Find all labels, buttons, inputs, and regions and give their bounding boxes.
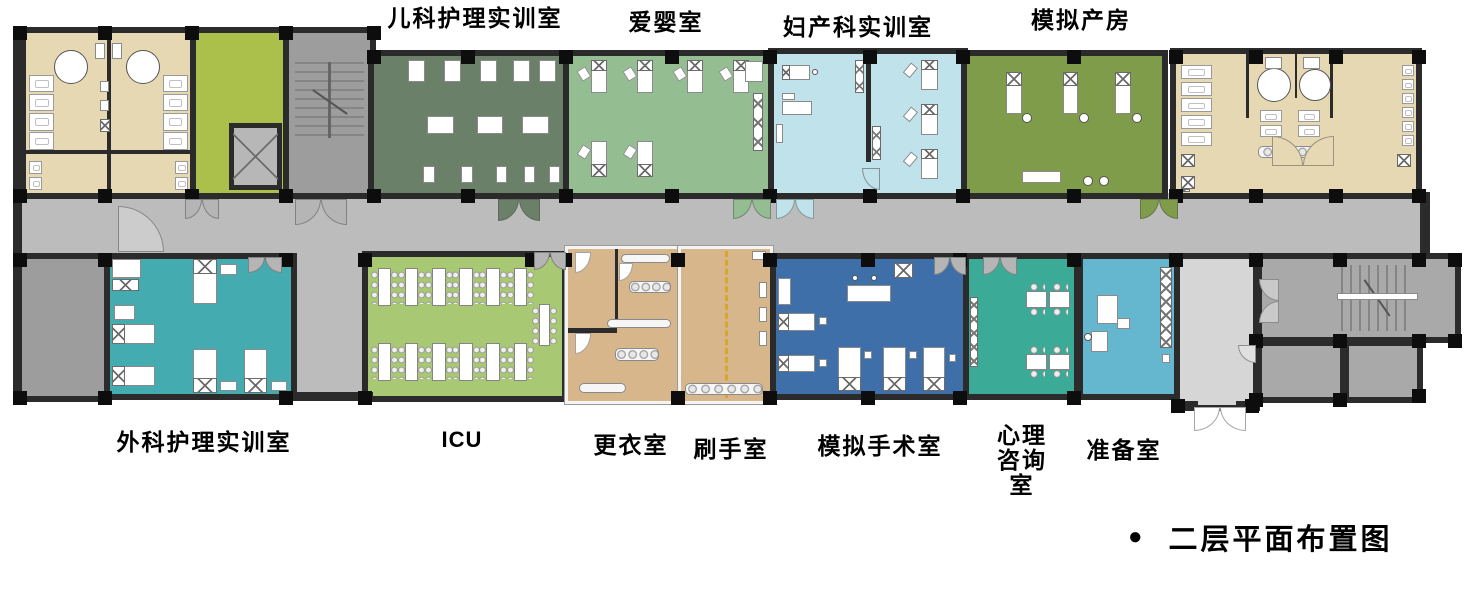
prep-room-furniture xyxy=(1097,295,1118,323)
restroom-left-toilet-stall xyxy=(29,132,54,150)
restroom-left-toilet-stall xyxy=(29,113,54,131)
elevator-x-icon xyxy=(233,127,278,186)
structural-column xyxy=(13,26,27,40)
structural-column xyxy=(1412,334,1426,348)
room-bottom-right-2-floor xyxy=(1343,340,1423,403)
structural-column xyxy=(1448,253,1462,267)
structural-column xyxy=(98,26,112,40)
operating-room-bed xyxy=(883,347,906,392)
counseling-room-cabinet xyxy=(970,297,978,367)
structural-column xyxy=(1412,389,1426,403)
double-door-leaf xyxy=(1194,407,1220,431)
surgical-room-furniture xyxy=(112,259,141,278)
structural-column xyxy=(98,391,112,405)
delivery-room-bed xyxy=(1006,72,1022,113)
structural-column xyxy=(461,50,475,64)
icu-room-desk xyxy=(486,268,500,306)
restroom-left-toilet-stall xyxy=(29,75,54,93)
surgical-room-furniture xyxy=(220,381,236,392)
changing-room-counter xyxy=(615,348,659,362)
restroom-right-toilet-stall xyxy=(1181,65,1212,79)
restroom-left-partition-wall xyxy=(107,33,111,193)
obgyn-room-partition-wall xyxy=(866,54,871,162)
counseling-room-floor xyxy=(963,253,1080,400)
changing-room-counter xyxy=(629,281,671,293)
counseling-room-table xyxy=(1049,354,1070,370)
delivery-room-furniture xyxy=(1022,171,1061,183)
restroom-right-partition-wall xyxy=(1295,54,1297,98)
restroom-left-hatch-box xyxy=(100,119,110,132)
restroom-right-furniture xyxy=(1265,57,1282,70)
structural-column xyxy=(559,50,573,64)
room-label-scrub: 刷手室 xyxy=(694,437,769,462)
pediatric-room-furniture xyxy=(444,60,461,82)
structural-column xyxy=(1171,399,1185,413)
room-label-counseling: 心理 咨询 室 xyxy=(997,423,1047,498)
restroom-left-partition-wall xyxy=(26,150,191,154)
surgical-room-bed xyxy=(112,324,155,344)
restroom-left-furniture xyxy=(95,43,105,59)
counseling-room-table xyxy=(1026,291,1047,307)
structural-column xyxy=(1169,50,1183,64)
structural-column xyxy=(763,253,777,267)
delivery-room-round-fixture xyxy=(1099,176,1109,186)
obgyn-room-furniture xyxy=(776,124,784,143)
restroom-right-toilet-stall xyxy=(1181,115,1212,129)
infant-room-bed-head xyxy=(637,164,653,176)
infant-room-bed-head xyxy=(637,60,653,71)
restroom-right-round-fixture xyxy=(1257,68,1291,102)
obgyn-room-bed xyxy=(921,149,938,180)
pediatric-room-furniture xyxy=(461,166,472,184)
room-label-icu: ICU xyxy=(442,427,483,453)
structural-column xyxy=(1249,50,1263,64)
icu-room-desk xyxy=(405,343,419,381)
operating-room-bed-head xyxy=(778,313,789,331)
restroom-right-toilet-stall xyxy=(1402,121,1414,132)
operating-room-furniture xyxy=(909,351,917,359)
surgical-room-bed-head xyxy=(244,378,268,392)
scrub-room-furniture xyxy=(759,282,767,297)
changing-room-counter xyxy=(607,319,671,328)
scrub-room-counter xyxy=(685,383,763,395)
structural-column xyxy=(279,26,293,40)
obgyn-room-bed xyxy=(782,65,810,80)
structural-column xyxy=(367,50,381,64)
room-label-operating: 模拟手术室 xyxy=(818,434,943,459)
entrance-lobby-floor xyxy=(1174,253,1259,411)
restroom-left-toilet-stall xyxy=(29,161,42,174)
operating-room-bed xyxy=(923,347,946,392)
icu-room-desk xyxy=(514,268,528,306)
structural-column xyxy=(358,391,372,405)
obgyn-room-cabinet xyxy=(872,126,881,159)
surgical-room-furniture xyxy=(114,305,136,320)
legend: ● 二层平面布置图 xyxy=(1128,516,1393,558)
infant-room-cabinet xyxy=(753,93,763,151)
surgical-room-bed-head xyxy=(112,366,125,386)
restroom-right-hatch-box xyxy=(1397,154,1411,167)
structural-column xyxy=(1067,189,1081,203)
structural-column xyxy=(1333,334,1347,348)
structural-column xyxy=(98,189,112,203)
corridor-pocket-left xyxy=(288,253,368,395)
structural-column xyxy=(671,253,685,267)
infant-room-bed xyxy=(637,60,653,93)
structural-column xyxy=(1249,253,1263,267)
obgyn-room-bed xyxy=(921,104,938,135)
pediatric-room-furniture xyxy=(408,60,425,82)
operating-room-bed xyxy=(778,355,816,373)
restroom-right-toilet-stall xyxy=(1181,82,1212,96)
prep-room-furniture xyxy=(1091,331,1107,353)
pediatric-room-furniture xyxy=(496,166,507,184)
structural-column xyxy=(367,189,381,203)
operating-room-bed xyxy=(838,347,861,392)
restroom-right-toilet-stall xyxy=(1402,135,1414,146)
pediatric-room-furniture xyxy=(539,60,556,82)
restroom-left-toilet-stall xyxy=(29,94,54,112)
restroom-right-toilet-stall xyxy=(1181,132,1212,146)
scrub-room-dashed-line xyxy=(725,251,728,398)
structural-column xyxy=(1249,393,1263,407)
structural-column xyxy=(1329,50,1343,64)
structural-column xyxy=(863,189,877,203)
stairwell-bottom-right-furniture xyxy=(1337,293,1418,299)
operating-room-furniture xyxy=(949,354,957,362)
delivery-room-round-fixture xyxy=(1079,113,1089,123)
pediatric-room-furniture xyxy=(513,60,530,82)
structural-column xyxy=(1412,50,1426,64)
gray-room-bottom-left-floor xyxy=(13,253,110,402)
room-label-changing: 更衣室 xyxy=(594,433,669,458)
delivery-room-round-fixture xyxy=(1083,176,1093,186)
icu-room-desk xyxy=(486,343,500,381)
surgical-room-bed xyxy=(193,349,217,392)
surgical-room-bed xyxy=(244,349,268,392)
structural-column xyxy=(367,26,381,40)
floor-plan-title: 二层平面布置图 xyxy=(1169,516,1393,558)
surgical-room-bed xyxy=(112,366,155,386)
surgical-room-furniture xyxy=(271,381,287,392)
wall-segment xyxy=(13,27,22,403)
restroom-left-toilet-stall xyxy=(175,161,188,174)
structural-column xyxy=(863,50,877,64)
prep-room-cabinet xyxy=(1160,267,1172,348)
room-label-surgical: 外科护理实训室 xyxy=(117,430,292,455)
structural-column xyxy=(763,50,777,64)
structural-column xyxy=(671,391,685,405)
operating-room-bed-head xyxy=(923,377,946,392)
scrub-room-furniture xyxy=(759,331,767,346)
icu-room-desk xyxy=(432,343,446,381)
delivery-room-bed-head xyxy=(1006,72,1022,86)
structural-column xyxy=(279,391,293,405)
room-label-prep: 准备室 xyxy=(1087,438,1162,463)
structural-column xyxy=(1169,253,1183,267)
structural-column xyxy=(861,391,875,405)
pediatric-room-furniture xyxy=(423,166,434,184)
operating-room-furniture xyxy=(819,359,827,367)
surgical-room-furniture xyxy=(220,264,236,275)
changing-room-counter xyxy=(579,383,626,394)
structural-column xyxy=(1249,189,1263,203)
prep-room-furniture xyxy=(1117,318,1131,329)
structural-column xyxy=(98,253,112,267)
structural-column xyxy=(956,50,970,64)
icu-room-desk xyxy=(378,343,392,381)
structural-column xyxy=(1412,253,1426,267)
obgyn-room-bed-head xyxy=(921,104,938,115)
surgical-room-bed-head xyxy=(193,259,217,274)
structural-column xyxy=(13,253,27,267)
restroom-left-toilet-stall xyxy=(29,177,42,190)
restroom-left-toilet-stall xyxy=(163,94,188,112)
structural-column xyxy=(279,189,293,203)
restroom-right-toilet-stall xyxy=(1298,110,1320,123)
structural-column xyxy=(1333,253,1347,267)
restroom-right-toilet-stall xyxy=(1260,125,1282,138)
structural-column xyxy=(1329,189,1343,203)
structural-column xyxy=(13,189,27,203)
icu-room-desk xyxy=(539,304,551,346)
operating-room-round-fixture xyxy=(852,275,858,281)
icu-room-desk xyxy=(432,268,446,306)
delivery-room-bed xyxy=(1063,72,1079,113)
room-label-obgyn: 妇产科实训室 xyxy=(783,15,933,40)
pediatric-room-furniture xyxy=(477,116,504,134)
obgyn-room-cabinet xyxy=(855,60,864,93)
surgical-room-bed xyxy=(193,259,217,304)
pediatric-room-furniture xyxy=(524,166,535,184)
room-label-infant: 爱婴室 xyxy=(629,10,704,35)
structural-column xyxy=(763,391,777,405)
restroom-left-furniture xyxy=(112,43,122,59)
restroom-left-furniture xyxy=(100,81,108,92)
operating-room-furniture xyxy=(847,285,890,303)
changing-room-partition-wall xyxy=(615,249,618,328)
infant-room-bed xyxy=(637,141,653,177)
restroom-left-round-fixture xyxy=(126,50,160,84)
structural-column xyxy=(1412,189,1426,203)
prep-room-furniture xyxy=(1162,354,1170,363)
structural-column xyxy=(1067,50,1081,64)
structural-column xyxy=(861,253,875,267)
restroom-right-toilet-stall xyxy=(1181,98,1212,112)
operating-room-bed-head xyxy=(838,377,861,392)
room-label-delivery: 模拟产房 xyxy=(1031,8,1131,33)
structural-column xyxy=(1067,391,1081,405)
obgyn-room-bed-head xyxy=(921,60,938,71)
pediatric-room-furniture xyxy=(549,166,560,184)
obgyn-room-bed-head xyxy=(782,65,791,80)
operating-room-furniture xyxy=(778,278,791,305)
restroom-right-round-fixture xyxy=(1299,69,1331,101)
infant-room-bed xyxy=(591,141,607,177)
changing-room-counter xyxy=(621,254,670,263)
structural-column xyxy=(665,50,679,64)
operating-room-bed-head xyxy=(883,377,906,392)
icu-room-desk xyxy=(405,268,419,306)
delivery-room-bed xyxy=(1115,72,1131,113)
operating-room-round-fixture xyxy=(871,275,877,281)
operating-room-bed xyxy=(778,313,816,331)
pediatric-room-furniture xyxy=(427,116,454,134)
structural-column xyxy=(559,189,573,203)
structural-column xyxy=(358,253,372,267)
restroom-right-toilet-stall xyxy=(1298,125,1320,138)
double-door-leaf xyxy=(1220,407,1246,431)
delivery-room-round-fixture xyxy=(1132,113,1142,123)
structural-column xyxy=(665,189,679,203)
operating-room-furniture xyxy=(819,317,827,325)
floor-plan: ● 二层平面布置图 儿科护理实训室爱婴室妇产科实训室模拟产房外科护理实训室ICU… xyxy=(0,0,1471,600)
restroom-right-hatch-box xyxy=(1181,154,1195,167)
structural-column xyxy=(1333,393,1347,407)
restroom-right-toilet-stall xyxy=(1402,79,1414,90)
operating-room-bed-head xyxy=(778,355,789,373)
restroom-left-toilet-stall xyxy=(175,177,188,190)
obgyn-room-bed-head xyxy=(921,149,938,160)
structural-column xyxy=(13,391,27,405)
restroom-left-toilet-stall xyxy=(163,113,188,131)
restroom-right-hatch-box xyxy=(1181,176,1195,189)
restroom-left-toilet-stall xyxy=(163,132,188,150)
structural-column xyxy=(1448,334,1462,348)
room-label-pediatric: 儿科护理实训室 xyxy=(388,6,563,31)
structural-column xyxy=(185,26,199,40)
restroom-left-round-fixture xyxy=(54,50,88,84)
counseling-room-table xyxy=(1026,354,1047,370)
changing-room-partition-wall xyxy=(568,328,617,333)
infant-room-bed-head xyxy=(591,60,607,71)
icu-room-desk xyxy=(378,268,392,306)
infant-room-bed xyxy=(591,60,607,93)
structural-column xyxy=(956,189,970,203)
pediatric-room-furniture xyxy=(522,116,549,134)
structural-column xyxy=(1067,253,1081,267)
icu-room-desk xyxy=(459,268,473,306)
icu-room-desk xyxy=(459,343,473,381)
structural-column xyxy=(461,189,475,203)
restroom-left-toilet-stall xyxy=(163,75,188,93)
operating-room-furniture xyxy=(864,351,872,359)
restroom-left-furniture xyxy=(100,100,108,111)
restroom-right-toilet-stall xyxy=(1402,65,1414,76)
infant-room-bed-head xyxy=(687,60,703,71)
infant-room-bed-head xyxy=(591,164,607,176)
infant-room-bed xyxy=(687,60,703,93)
operating-room-hatch-box xyxy=(894,263,913,278)
obgyn-room-bed xyxy=(921,60,938,91)
restroom-right-furniture xyxy=(1303,57,1320,70)
surgical-room-bed-head xyxy=(112,324,125,344)
pediatric-room-furniture xyxy=(480,60,497,82)
restroom-right-toilet-stall xyxy=(1402,93,1414,104)
obgyn-room-furniture xyxy=(782,93,795,100)
delivery-room-bed-head xyxy=(1063,72,1079,86)
scrub-room-furniture xyxy=(759,307,767,322)
restroom-right-toilet-stall xyxy=(1402,107,1414,118)
surgical-room-bed-head xyxy=(193,378,217,392)
obgyn-room-furniture xyxy=(782,101,812,115)
infant-room-furniture xyxy=(745,61,763,82)
delivery-room-bed-head xyxy=(1115,72,1131,86)
legend-bullet-icon: ● xyxy=(1128,518,1143,556)
structural-column xyxy=(953,391,967,405)
restroom-right-toilet-stall xyxy=(1260,110,1282,123)
counseling-room-table xyxy=(1049,291,1070,307)
icu-room-desk xyxy=(514,343,528,381)
surgical-room-hatch-box xyxy=(112,279,139,291)
